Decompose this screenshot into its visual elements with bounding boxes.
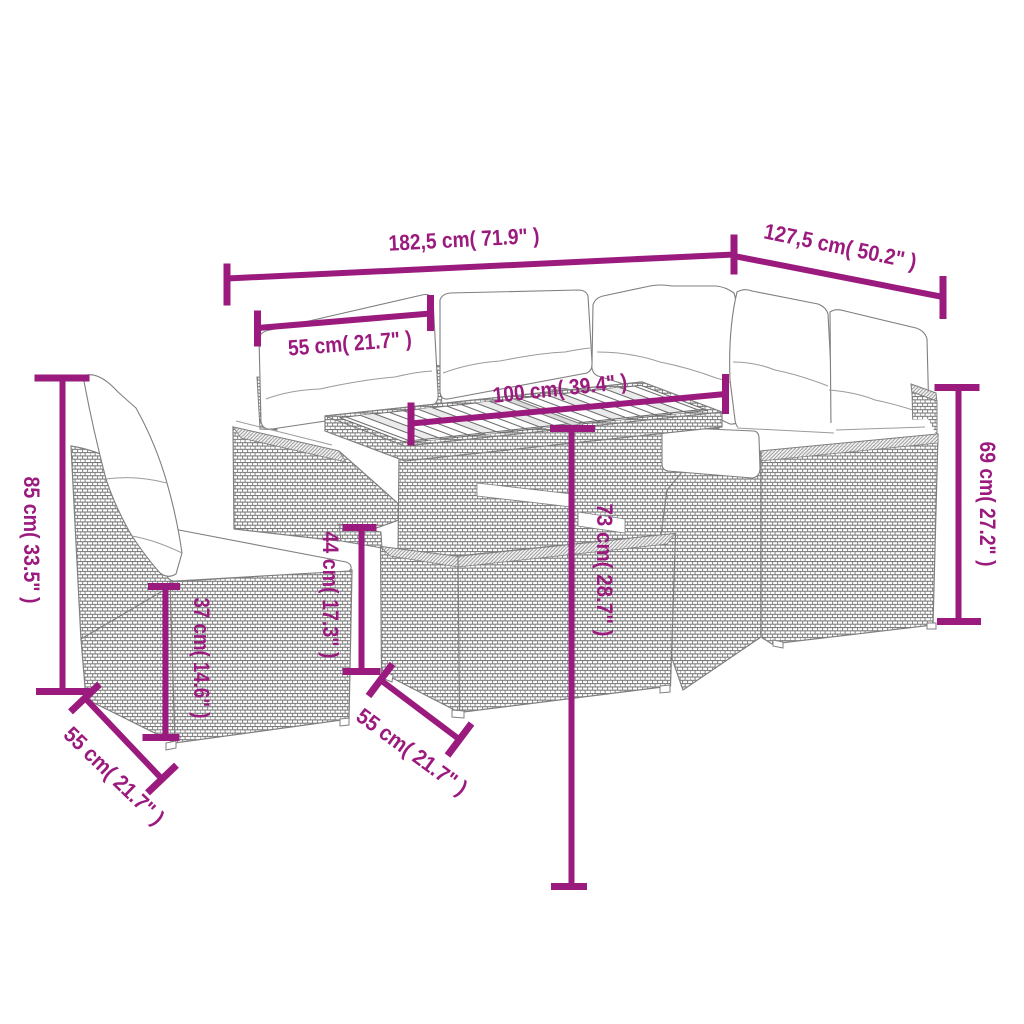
svg-text:69 cm( 27.2" ): 69 cm( 27.2" )	[975, 442, 1000, 567]
svg-text:44 cm( 17.3" ): 44 cm( 17.3" )	[318, 532, 343, 659]
svg-text:73 cm( 28.7" ): 73 cm( 28.7" )	[592, 504, 617, 637]
svg-text:85 cm( 33.5" ): 85 cm( 33.5" )	[19, 477, 44, 604]
svg-text:37 cm( 14.6" ): 37 cm( 14.6" )	[189, 598, 214, 719]
